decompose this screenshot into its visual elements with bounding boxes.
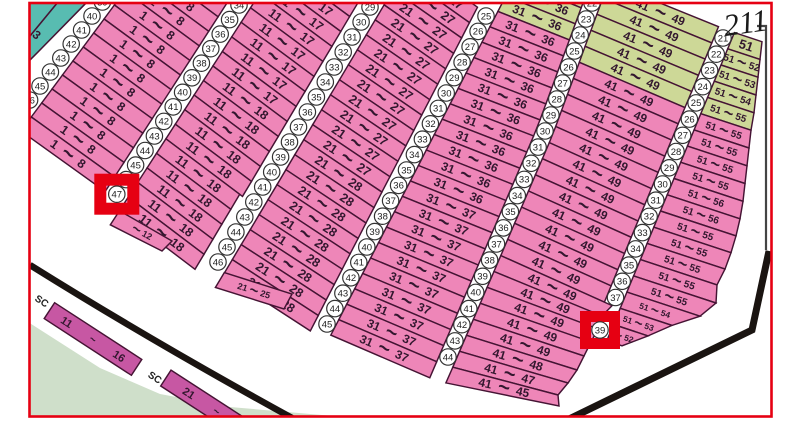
svg-text:44: 44 xyxy=(45,67,56,78)
svg-text:33: 33 xyxy=(519,175,530,186)
svg-text:40: 40 xyxy=(470,288,481,299)
svg-text:32: 32 xyxy=(425,119,436,130)
svg-text:30: 30 xyxy=(441,88,452,99)
svg-text:37: 37 xyxy=(206,44,217,55)
svg-text:35: 35 xyxy=(505,207,516,218)
svg-text:35: 35 xyxy=(311,92,322,103)
svg-text:45: 45 xyxy=(222,242,233,253)
svg-text:27: 27 xyxy=(677,131,688,142)
svg-text:29: 29 xyxy=(664,163,675,174)
svg-text:39: 39 xyxy=(275,152,286,163)
svg-text:26: 26 xyxy=(684,114,695,125)
svg-text:27: 27 xyxy=(465,42,476,53)
svg-text:32: 32 xyxy=(644,212,655,223)
svg-text:32: 32 xyxy=(338,47,349,58)
svg-text:37: 37 xyxy=(491,239,502,250)
svg-text:25: 25 xyxy=(481,11,492,22)
svg-text:43: 43 xyxy=(56,53,67,64)
svg-text:44: 44 xyxy=(443,352,454,363)
svg-text:23: 23 xyxy=(581,14,592,25)
svg-text:41: 41 xyxy=(76,25,87,36)
svg-text:27: 27 xyxy=(557,78,568,89)
svg-text:34: 34 xyxy=(409,150,420,161)
svg-text:41: 41 xyxy=(168,102,179,113)
svg-text:46: 46 xyxy=(213,257,224,268)
svg-text:42: 42 xyxy=(346,273,357,284)
svg-text:42: 42 xyxy=(457,320,468,331)
svg-text:34: 34 xyxy=(320,77,331,88)
svg-text:30: 30 xyxy=(657,179,668,190)
svg-text:39: 39 xyxy=(369,227,380,238)
svg-text:26: 26 xyxy=(563,62,574,73)
svg-text:43: 43 xyxy=(450,336,461,347)
svg-text:40: 40 xyxy=(362,242,373,253)
svg-text:28: 28 xyxy=(671,147,682,158)
svg-text:40: 40 xyxy=(87,11,98,22)
svg-text:37: 37 xyxy=(610,293,621,304)
svg-text:23: 23 xyxy=(704,66,715,77)
svg-text:24: 24 xyxy=(698,82,709,93)
svg-text:42: 42 xyxy=(66,39,77,50)
svg-text:38: 38 xyxy=(377,212,388,223)
svg-text:29: 29 xyxy=(546,110,557,121)
svg-text:32: 32 xyxy=(526,159,537,170)
svg-text:36: 36 xyxy=(302,107,313,118)
svg-text:31: 31 xyxy=(651,196,662,207)
svg-text:43: 43 xyxy=(338,289,349,300)
svg-text:45: 45 xyxy=(35,81,46,92)
svg-text:35: 35 xyxy=(224,15,235,26)
svg-text:41: 41 xyxy=(354,258,365,269)
svg-text:22: 22 xyxy=(711,50,722,61)
svg-text:36: 36 xyxy=(498,223,509,234)
svg-text:30: 30 xyxy=(540,126,551,137)
svg-text:25: 25 xyxy=(569,46,580,57)
svg-text:25: 25 xyxy=(691,98,702,109)
svg-text:31: 31 xyxy=(433,104,444,115)
svg-text:33: 33 xyxy=(329,62,340,73)
svg-text:39: 39 xyxy=(477,272,488,283)
svg-text:211: 211 xyxy=(721,2,770,43)
svg-text:26: 26 xyxy=(473,27,484,38)
svg-text:45: 45 xyxy=(130,160,141,171)
svg-text:34: 34 xyxy=(512,191,523,202)
svg-text:44: 44 xyxy=(330,304,341,315)
svg-text:44: 44 xyxy=(140,146,151,157)
svg-text:36: 36 xyxy=(215,29,226,40)
svg-text:45: 45 xyxy=(322,319,333,330)
svg-text:43: 43 xyxy=(240,212,251,223)
svg-text:40: 40 xyxy=(266,167,277,178)
svg-text:36: 36 xyxy=(393,181,404,192)
svg-text:39: 39 xyxy=(595,325,606,336)
svg-text:38: 38 xyxy=(284,137,295,148)
svg-text:44: 44 xyxy=(231,227,242,238)
svg-text:38: 38 xyxy=(484,255,495,266)
svg-text:40: 40 xyxy=(177,88,188,99)
svg-text:42: 42 xyxy=(249,197,260,208)
svg-text:47: 47 xyxy=(112,190,123,201)
svg-text:37: 37 xyxy=(293,122,304,133)
svg-text:38: 38 xyxy=(196,59,207,70)
svg-text:30: 30 xyxy=(356,17,367,28)
svg-text:28: 28 xyxy=(457,58,468,69)
svg-text:31: 31 xyxy=(533,142,544,153)
svg-text:41: 41 xyxy=(257,182,268,193)
svg-text:31: 31 xyxy=(347,32,358,43)
svg-text:43: 43 xyxy=(149,131,160,142)
svg-text:24: 24 xyxy=(575,30,586,41)
svg-text:41: 41 xyxy=(464,304,475,315)
svg-text:29: 29 xyxy=(449,73,460,84)
svg-text:34: 34 xyxy=(630,244,641,255)
svg-text:36: 36 xyxy=(617,277,628,288)
svg-text:37: 37 xyxy=(385,196,396,207)
svg-text:39: 39 xyxy=(187,73,198,84)
svg-text:28: 28 xyxy=(552,94,563,105)
svg-text:33: 33 xyxy=(417,135,428,146)
svg-text:33: 33 xyxy=(637,228,648,239)
svg-text:35: 35 xyxy=(401,165,412,176)
svg-text:42: 42 xyxy=(159,117,170,128)
svg-text:35: 35 xyxy=(624,260,635,271)
